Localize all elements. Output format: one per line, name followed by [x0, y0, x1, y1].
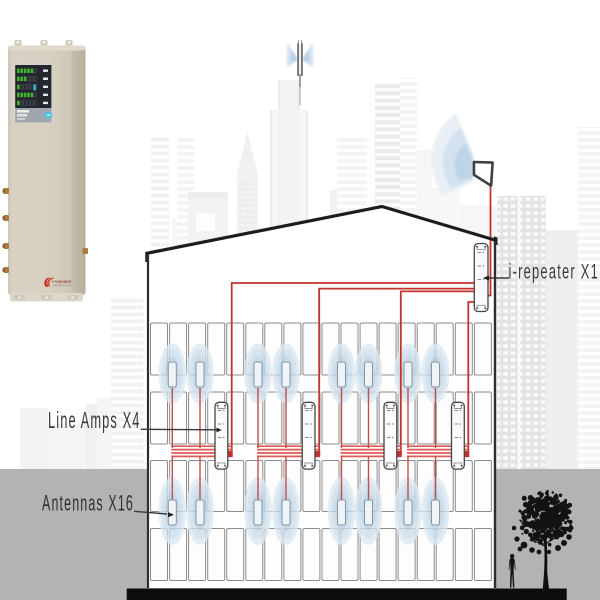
svg-text:Line Amps X4: Line Amps X4 — [48, 407, 141, 433]
svg-text:Antennas X16: Antennas X16 — [42, 491, 134, 516]
svg-text:i-repeater X1: i-repeater X1 — [509, 261, 600, 284]
svg-text:i-repeater: i-repeater — [52, 279, 72, 284]
